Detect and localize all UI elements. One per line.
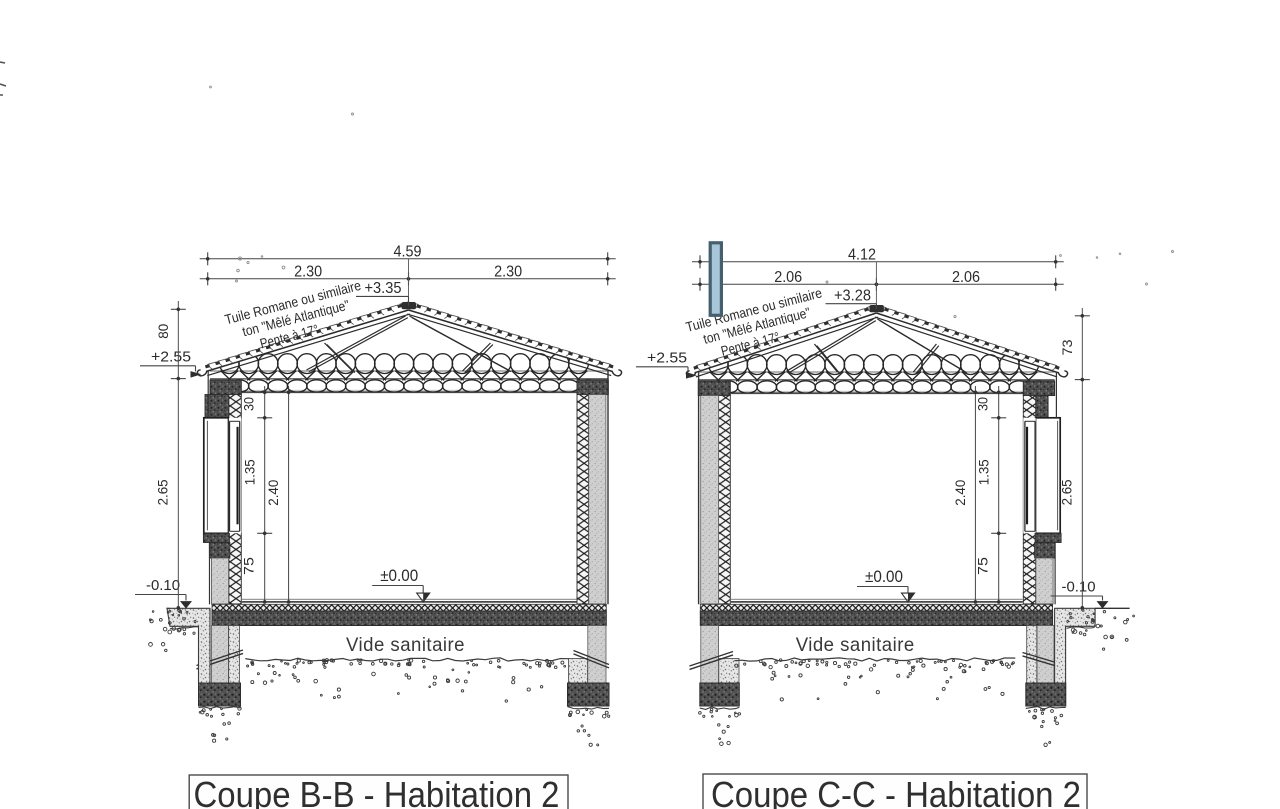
svg-text:2.06: 2.06	[952, 269, 980, 286]
svg-text:75: 75	[242, 557, 257, 575]
svg-text:4.59: 4.59	[394, 243, 422, 260]
svg-text:Coupe B-B - Habitation 2: Coupe B-B - Habitation 2	[194, 774, 560, 809]
svg-text:1.35: 1.35	[243, 459, 258, 485]
svg-text:80: 80	[156, 324, 171, 339]
svg-text:±0.00: ±0.00	[865, 567, 903, 586]
svg-text:+3.28: +3.28	[834, 288, 871, 305]
svg-text:2.06: 2.06	[774, 269, 802, 286]
svg-text:±0.00: ±0.00	[380, 566, 418, 585]
svg-text:-0.10: -0.10	[146, 577, 180, 594]
svg-text:30: 30	[976, 397, 991, 411]
svg-text:1.35: 1.35	[977, 459, 992, 485]
svg-text:Vide sanitaire: Vide sanitaire	[796, 634, 915, 656]
svg-text:Vide sanitaire: Vide sanitaire	[346, 634, 465, 656]
svg-text:2.40: 2.40	[953, 480, 968, 506]
svg-text:2.30: 2.30	[494, 263, 522, 280]
svg-text:2.30: 2.30	[294, 263, 322, 280]
svg-text:+3.35: +3.35	[365, 280, 402, 297]
svg-text:+2.55: +2.55	[647, 350, 687, 367]
svg-text:30: 30	[242, 397, 257, 411]
svg-text:+2.55: +2.55	[151, 349, 191, 366]
svg-text:Coupe C-C - Habitation 2: Coupe C-C - Habitation 2	[711, 774, 1081, 809]
svg-text:2.65: 2.65	[156, 479, 171, 505]
svg-text:73: 73	[1060, 340, 1075, 356]
svg-text:-0.10: -0.10	[1062, 579, 1096, 596]
svg-text:2.40: 2.40	[266, 480, 281, 506]
svg-text:4.12: 4.12	[848, 246, 876, 263]
svg-text:2.65: 2.65	[1060, 479, 1075, 505]
svg-text:75: 75	[976, 557, 991, 575]
